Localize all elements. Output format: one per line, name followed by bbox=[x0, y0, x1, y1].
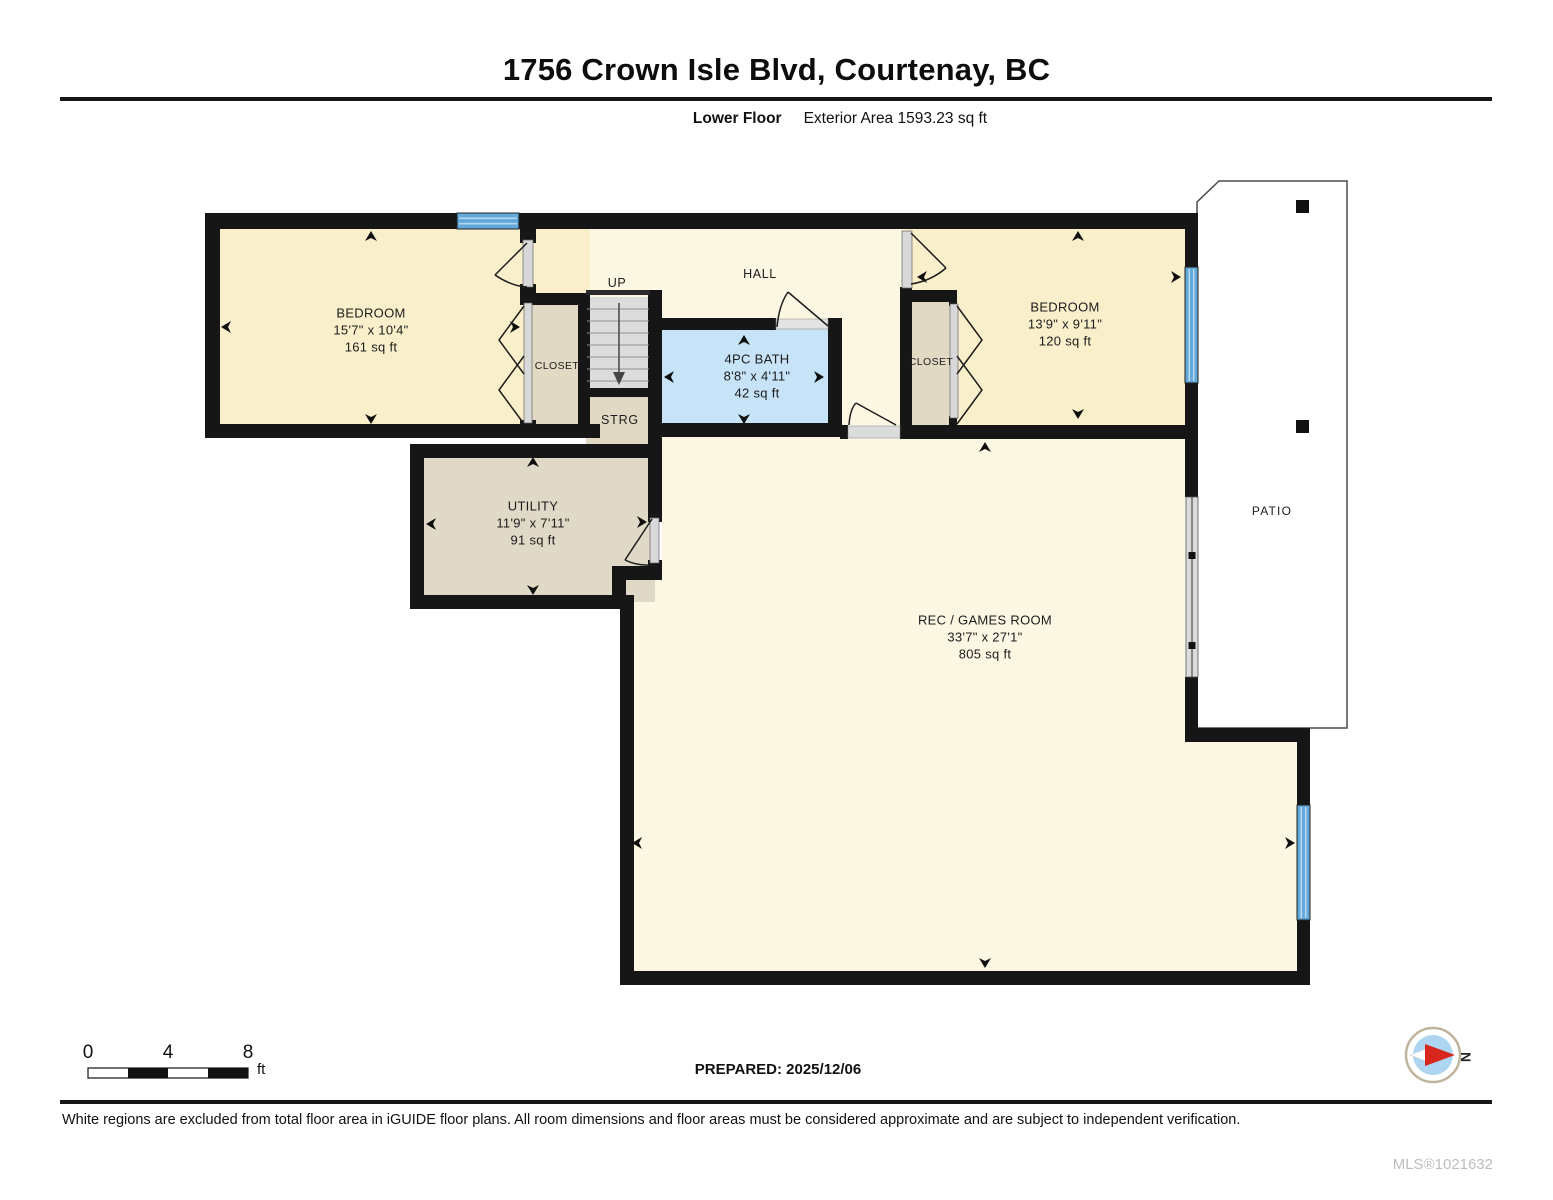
room-label-bedroom2: BEDROOM 13'9" x 9'11" 120 sq ft bbox=[1028, 298, 1102, 349]
footer-disclaimer: White regions are excluded from total fl… bbox=[62, 1112, 1240, 1128]
room-area: 161 sq ft bbox=[333, 339, 408, 356]
room-dims: 8'8" x 4'11" bbox=[724, 367, 791, 384]
room-name: REC / GAMES ROOM bbox=[918, 611, 1052, 628]
scale-tick-4: 4 bbox=[163, 1042, 174, 1064]
room-dims: 15'7" x 10'4" bbox=[333, 321, 408, 338]
page-title: 1756 Crown Isle Blvd, Courtenay, BC bbox=[0, 52, 1553, 88]
room-dims: 33'7" x 27'1" bbox=[918, 628, 1052, 645]
compass-north-label: N bbox=[1458, 1052, 1474, 1062]
compass-icon bbox=[1406, 1028, 1460, 1082]
floor-plan-page: { "header": { "title": "1756 Crown Isle … bbox=[0, 0, 1553, 1200]
footer-divider bbox=[60, 1100, 1492, 1104]
subtitle: Lower Floor Exterior Area 1593.23 sq ft bbox=[693, 110, 987, 128]
room-label-bedroom1: BEDROOM 15'7" x 10'4" 161 sq ft bbox=[333, 304, 408, 355]
room-label-utility: UTILITY 11'9" x 7'11" 91 sq ft bbox=[496, 497, 569, 548]
hall-label: HALL bbox=[743, 267, 777, 281]
room-area: 42 sq ft bbox=[724, 385, 791, 402]
room-label-bath: 4PC BATH 8'8" x 4'11" 42 sq ft bbox=[724, 350, 791, 401]
patio-label: PATIO bbox=[1252, 504, 1292, 518]
floor-plan-svg bbox=[0, 0, 1553, 1200]
room-area: 805 sq ft bbox=[918, 646, 1052, 663]
scale-bar bbox=[88, 1068, 248, 1078]
patio-outline bbox=[1197, 181, 1347, 728]
room-label-rec-room: REC / GAMES ROOM 33'7" x 27'1" 805 sq ft bbox=[918, 611, 1052, 662]
floor-label: Lower Floor bbox=[693, 110, 782, 128]
scale-tick-0: 0 bbox=[83, 1042, 94, 1064]
exterior-area-label: Exterior Area 1593.23 sq ft bbox=[804, 110, 988, 128]
room-name: BEDROOM bbox=[1028, 298, 1102, 315]
room-dims: 13'9" x 9'11" bbox=[1028, 315, 1102, 332]
room-area: 120 sq ft bbox=[1028, 333, 1102, 350]
room-area: 91 sq ft bbox=[496, 532, 569, 549]
room-dims: 11'9" x 7'11" bbox=[496, 514, 569, 531]
room-name: UTILITY bbox=[496, 497, 569, 514]
sliding-door bbox=[1186, 497, 1198, 677]
title-divider bbox=[60, 97, 1492, 101]
room-name: 4PC BATH bbox=[724, 350, 791, 367]
room-name: BEDROOM bbox=[333, 304, 408, 321]
storage-label: STRG bbox=[601, 413, 639, 427]
scale-tick-8: 8 bbox=[243, 1042, 254, 1064]
closet-right-label: CLOSET bbox=[909, 356, 953, 368]
closet-left-label: CLOSET bbox=[535, 360, 579, 372]
stairs-up-label: UP bbox=[608, 276, 627, 290]
prepared-date-label: PREPARED: 2025/12/06 bbox=[695, 1061, 861, 1078]
mls-number: MLS®1021632 bbox=[1393, 1156, 1493, 1173]
scale-unit-label: ft bbox=[257, 1061, 265, 1078]
